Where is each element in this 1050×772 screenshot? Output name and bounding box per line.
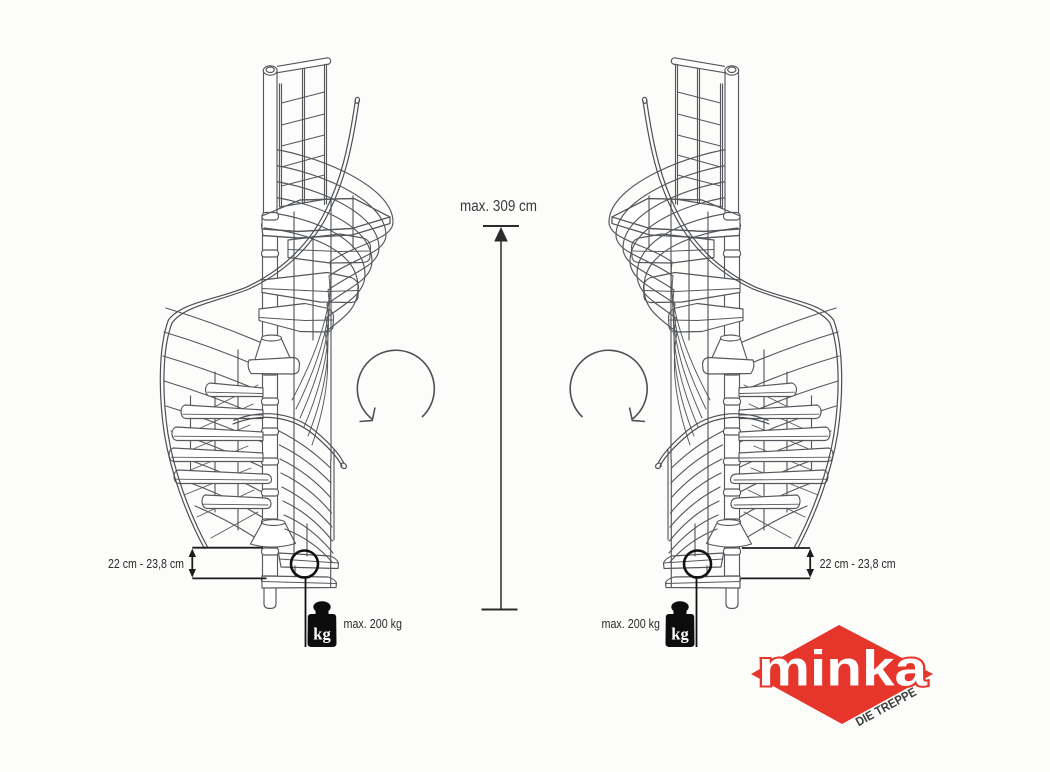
svg-text:22 cm - 23,8 cm: 22 cm - 23,8 cm	[108, 556, 184, 571]
svg-text:max. 200 kg: max. 200 kg	[602, 616, 661, 631]
svg-text:kg: kg	[313, 625, 331, 644]
svg-text:max. 200 kg: max. 200 kg	[344, 616, 403, 631]
svg-text:kg: kg	[671, 625, 689, 644]
svg-text:minka: minka	[758, 641, 928, 697]
svg-text:22 cm - 23,8 cm: 22 cm - 23,8 cm	[820, 556, 896, 571]
svg-text:max. 309 cm: max. 309 cm	[460, 198, 537, 215]
